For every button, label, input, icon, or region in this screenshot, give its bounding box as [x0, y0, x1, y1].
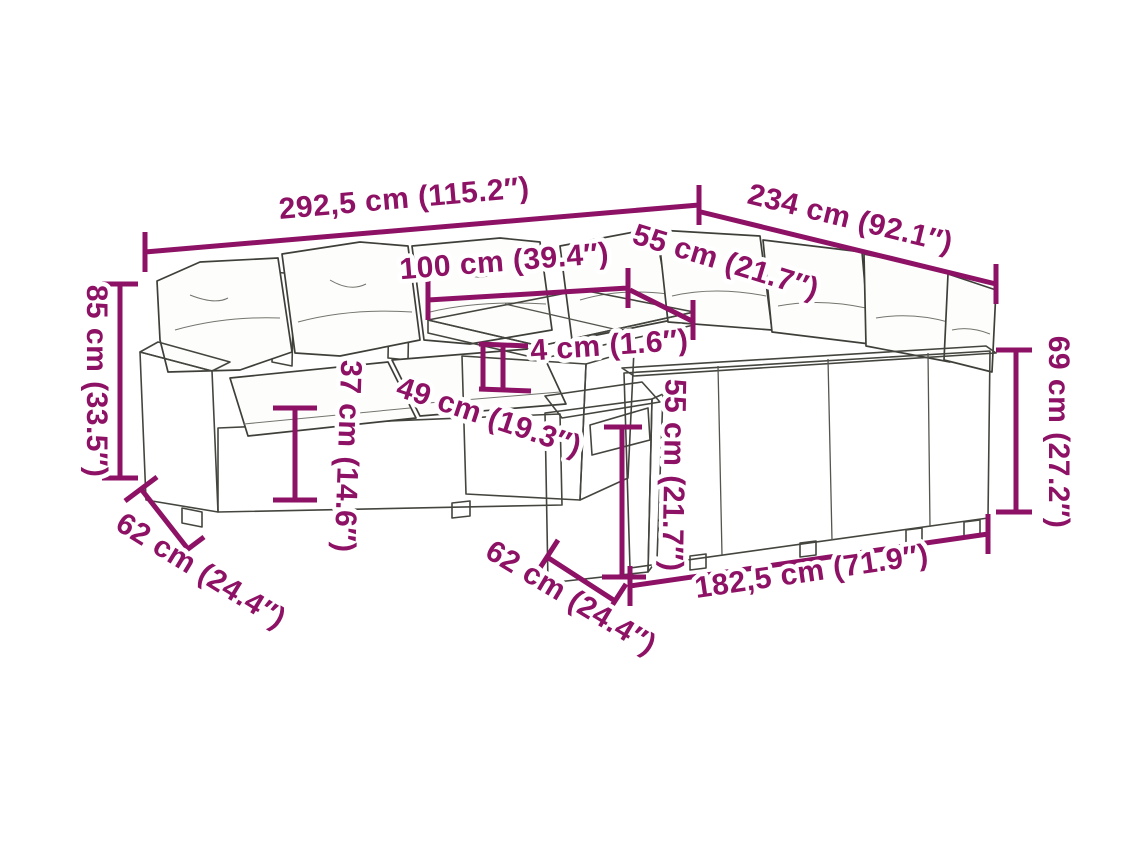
dim-stool-height-label: 55 cm (21.7″) — [655, 379, 691, 572]
dim-right-section-length-label: 182,5 cm (71.9″) — [693, 538, 931, 605]
dim-tabletop-thickness-label: 4 cm (1.6″) — [529, 324, 689, 368]
dim-seat-height-label: 37 cm (14.6″) — [328, 359, 368, 553]
dim-seat-depth-front: 62 cm (24.4″) — [480, 534, 662, 662]
dim-back-height-label: 85 cm (33.5″) — [80, 285, 113, 478]
dim-seat-depth-left: 62 cm (24.4″) — [110, 477, 291, 635]
dimension-annotations: 292,5 cm (115.2″) 234 cm (92.1″) 100 cm … — [80, 171, 1075, 661]
dim-arm-height: 69 cm (27.2″) — [996, 336, 1075, 529]
dim-arm-height-label: 69 cm (27.2″) — [1042, 336, 1075, 529]
dim-seat-depth-front-label: 62 cm (24.4″) — [480, 534, 662, 662]
dim-back-height: 85 cm (33.5″) — [80, 284, 138, 478]
furniture-drawing — [140, 228, 996, 583]
footstool — [545, 382, 663, 583]
dim-seat-depth-left-label: 62 cm (24.4″) — [110, 507, 291, 636]
dimension-diagram-stage: 292,5 cm (115.2″) 234 cm (92.1″) 100 cm … — [0, 0, 1130, 847]
furniture-dimension-diagram: 292,5 cm (115.2″) 234 cm (92.1″) 100 cm … — [0, 0, 1130, 847]
dim-overall-width-label: 292,5 cm (115.2″) — [278, 171, 531, 226]
